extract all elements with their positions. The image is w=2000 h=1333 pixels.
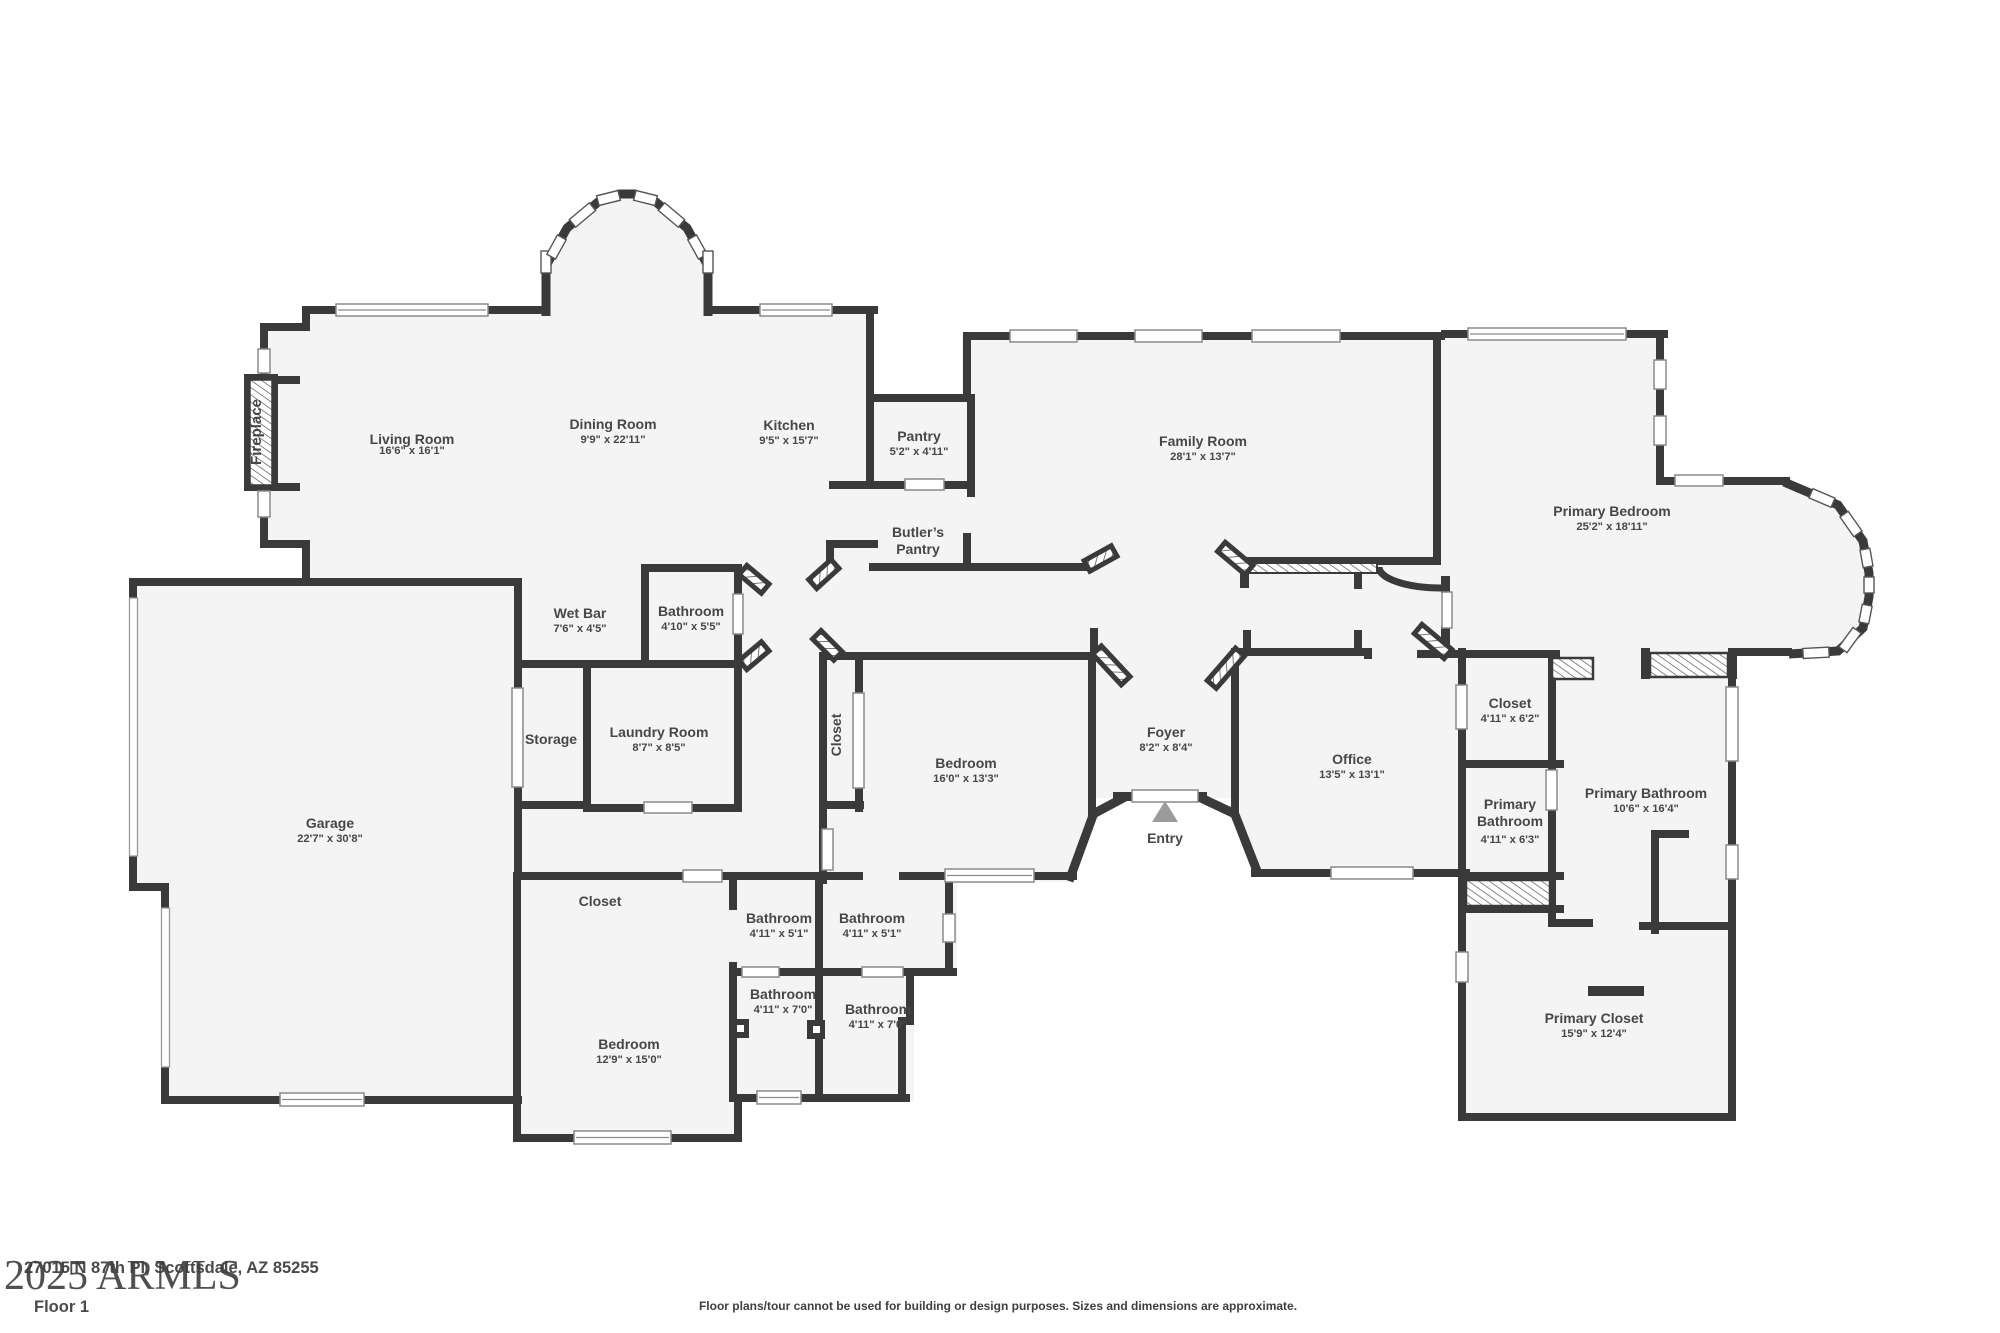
svg-text:8'2" x 8'4": 8'2" x 8'4": [1139, 742, 1192, 754]
svg-text:5'2" x 4'11": 5'2" x 4'11": [890, 446, 949, 458]
svg-text:Dining Room: Dining Room: [569, 416, 656, 432]
svg-text:Closet: Closet: [579, 893, 622, 909]
svg-text:Bedroom: Bedroom: [598, 1036, 659, 1052]
svg-text:Primary Closet: Primary Closet: [1545, 1010, 1644, 1026]
svg-text:Primary: Primary: [1484, 796, 1536, 812]
svg-text:2025 ARMLS: 2025 ARMLS: [4, 1253, 241, 1299]
svg-text:4'11" x 7'0": 4'11" x 7'0": [849, 1019, 908, 1031]
svg-text:Closet: Closet: [828, 713, 844, 756]
svg-text:Storage: Storage: [525, 731, 577, 747]
svg-text:Pantry: Pantry: [896, 541, 940, 557]
svg-text:Pantry: Pantry: [897, 428, 941, 444]
svg-text:Bathroom: Bathroom: [746, 910, 812, 926]
svg-text:28'1" x 13'7": 28'1" x 13'7": [1170, 451, 1236, 463]
svg-text:Floor 1: Floor 1: [34, 1298, 89, 1316]
svg-text:22'7" x 30'8": 22'7" x 30'8": [297, 833, 363, 845]
svg-text:Wet Bar: Wet Bar: [554, 605, 607, 621]
svg-text:Primary Bathroom: Primary Bathroom: [1585, 785, 1707, 801]
svg-text:Primary Bedroom: Primary Bedroom: [1553, 503, 1670, 519]
svg-text:16'0" x 13'3": 16'0" x 13'3": [933, 773, 999, 785]
svg-text:Fireplace: Fireplace: [248, 399, 265, 465]
svg-text:4'11" x 5'1": 4'11" x 5'1": [750, 928, 809, 940]
svg-text:12'9" x 15'0": 12'9" x 15'0": [596, 1054, 662, 1066]
svg-text:25'2" x 18'11": 25'2" x 18'11": [1576, 521, 1647, 533]
svg-text:4'11" x 5'1": 4'11" x 5'1": [843, 928, 902, 940]
svg-text:Kitchen: Kitchen: [763, 417, 814, 433]
svg-text:15'9" x 12'4": 15'9" x 12'4": [1561, 1028, 1627, 1040]
svg-text:9'9" x 22'11": 9'9" x 22'11": [580, 434, 645, 446]
svg-text:7'6" x 4'5": 7'6" x 4'5": [553, 623, 606, 635]
svg-text:8'7" x 8'5": 8'7" x 8'5": [632, 742, 685, 754]
svg-text:Bathroom: Bathroom: [1477, 813, 1543, 829]
svg-text:Family Room: Family Room: [1159, 433, 1247, 449]
svg-text:Bathroom: Bathroom: [658, 603, 724, 619]
svg-text:Floor plans/tour cannot be use: Floor plans/tour cannot be used for buil…: [699, 1299, 1297, 1313]
svg-text:Bathroom: Bathroom: [750, 986, 816, 1002]
svg-text:4'11" x 6'3": 4'11" x 6'3": [1481, 834, 1540, 846]
svg-text:9'5" x 15'7": 9'5" x 15'7": [759, 435, 818, 447]
svg-text:Laundry Room: Laundry Room: [610, 724, 709, 740]
svg-text:4'10" x 5'5": 4'10" x 5'5": [661, 621, 720, 633]
svg-text:Butler’s: Butler’s: [892, 524, 944, 540]
svg-text:Closet: Closet: [1489, 695, 1532, 711]
svg-text:4'11" x 7'0": 4'11" x 7'0": [754, 1004, 813, 1016]
svg-text:10'6" x 16'4": 10'6" x 16'4": [1613, 803, 1679, 815]
svg-text:Bedroom: Bedroom: [935, 755, 996, 771]
svg-text:Foyer: Foyer: [1147, 724, 1186, 740]
svg-text:Bathroom: Bathroom: [845, 1001, 911, 1017]
svg-text:13'5" x 13'1": 13'5" x 13'1": [1319, 769, 1385, 781]
svg-text:4'11" x 6'2": 4'11" x 6'2": [1481, 713, 1540, 725]
svg-text:Garage: Garage: [306, 815, 354, 831]
svg-text:Office: Office: [1332, 751, 1372, 767]
svg-text:16'6" x 16'1": 16'6" x 16'1": [379, 445, 445, 457]
svg-text:Bathroom: Bathroom: [839, 910, 905, 926]
svg-text:Entry: Entry: [1147, 830, 1183, 846]
